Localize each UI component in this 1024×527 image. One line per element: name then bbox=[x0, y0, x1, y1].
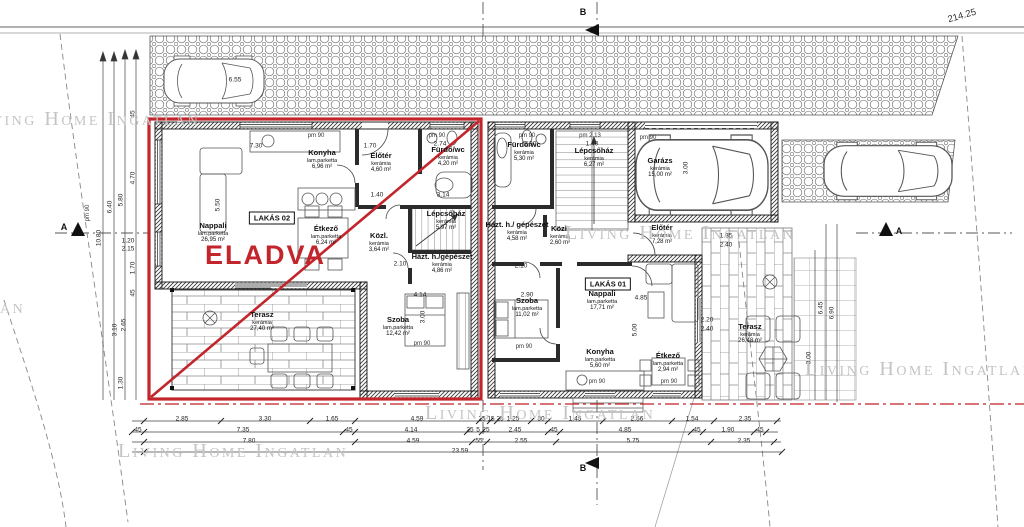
car-driveway-icon bbox=[824, 142, 952, 200]
road-lines bbox=[0, 27, 1024, 33]
car-street-icon bbox=[164, 56, 264, 106]
car-garage-icon bbox=[636, 135, 768, 215]
entry-steps bbox=[573, 398, 643, 412]
bath-fixtures bbox=[427, 130, 546, 198]
plan-drawing bbox=[0, 0, 1024, 527]
floor-plan-canvas: LAKÁS 02Nappalilam.parketta26,95 m²Konyh… bbox=[0, 0, 1024, 527]
